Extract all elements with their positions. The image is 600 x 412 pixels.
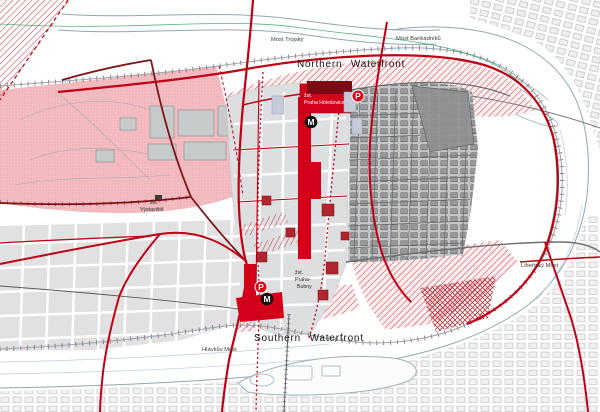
holesovice-existing-blocks bbox=[348, 83, 478, 262]
label-bubny-station-line3: Bubny bbox=[297, 284, 312, 290]
label-bubny-station-line1: žst. bbox=[295, 270, 303, 276]
stromovka-park bbox=[0, 66, 241, 213]
label-holesovice-station-line1: žst. bbox=[304, 93, 312, 99]
metro-icon-vltavska: M bbox=[261, 293, 274, 306]
label-most-trojsky: Most Trojský bbox=[271, 37, 304, 43]
label-vystaviste-line2: Výstaviště bbox=[140, 207, 164, 213]
metro-letter: M bbox=[263, 294, 270, 304]
label-northern-waterfront: Northern Waterfront bbox=[297, 59, 405, 70]
parking-letter: P bbox=[258, 282, 264, 292]
prague-holesovice-plan-map: M M P P Northern Waterfront Southern Wat… bbox=[0, 0, 600, 412]
label-vystaviste-line1: žst. bbox=[150, 200, 158, 206]
label-bubny-station-line2: Praha- bbox=[295, 277, 311, 283]
label-libensky-most: Libeňský Most bbox=[521, 263, 558, 269]
label-southern-waterfront: Southern Waterfront bbox=[254, 333, 364, 344]
metro-letter: M bbox=[307, 117, 314, 127]
metro-icon-holesovice: M bbox=[305, 116, 318, 129]
label-hlavkuv-most: Hlávkův Most bbox=[202, 346, 237, 353]
label-most-barikadniku: Most Barikádníků bbox=[396, 35, 441, 42]
parking-letter: P bbox=[355, 91, 361, 101]
boulevard-plaza bbox=[298, 162, 321, 199]
map-canvas: M M P P Northern Waterfront Southern Wat… bbox=[0, 0, 600, 412]
parking-icon-south: P bbox=[255, 281, 267, 293]
label-holesovice-station-line2: Praha Holešovice bbox=[304, 100, 345, 106]
parking-icon-north: P bbox=[352, 90, 364, 102]
